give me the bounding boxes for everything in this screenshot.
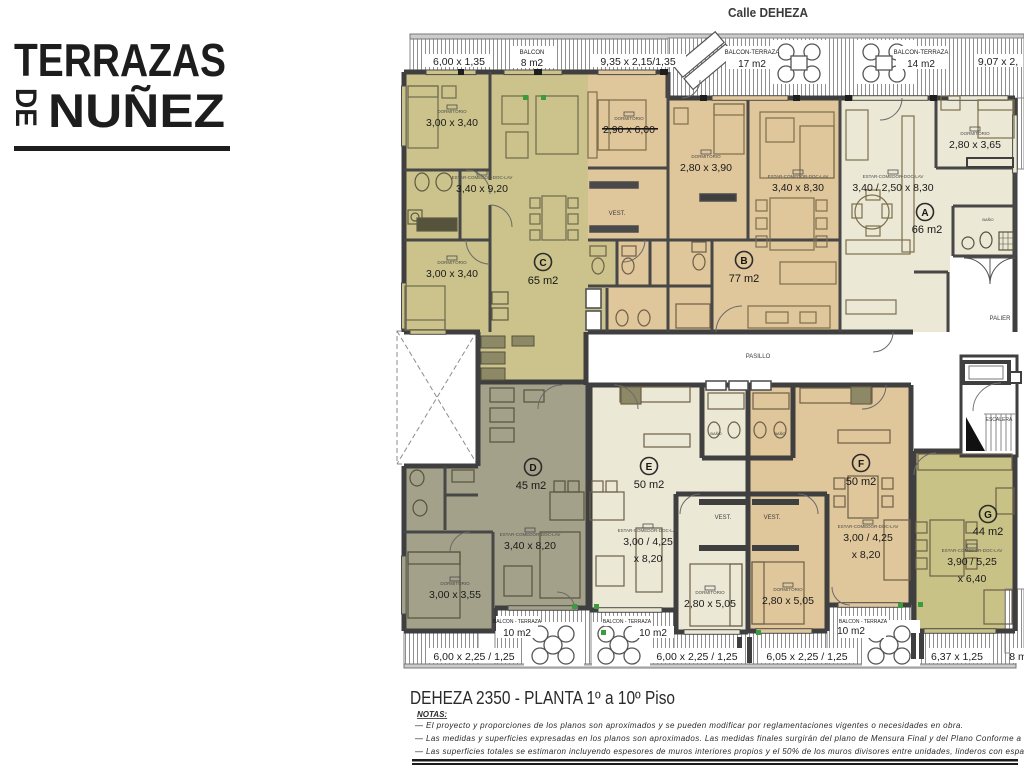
svg-text:66 m2: 66 m2: [912, 224, 943, 236]
svg-text:ESTAR-COMEDOR-DOC-LAV: ESTAR-COMEDOR-DOC-LAV: [838, 524, 899, 529]
svg-text:DORMITORIO: DORMITORIO: [691, 154, 721, 159]
svg-text:BALCON - TERRAZA: BALCON - TERRAZA: [839, 619, 888, 625]
svg-text:— Las superficies totales se: — Las superficies totales se estimaron i…: [414, 747, 1024, 756]
svg-text:2,80 x 5,05: 2,80 x 5,05: [684, 598, 736, 610]
svg-text:ESTAR-COMEDOR-DOC-LAV: ESTAR-COMEDOR-DOC-LAV: [452, 175, 513, 180]
svg-text:44 m2: 44 m2: [973, 526, 1004, 538]
svg-text:3,00 / 4,25: 3,00 / 4,25: [623, 536, 673, 548]
svg-text:DORMITORIO: DORMITORIO: [960, 131, 990, 136]
svg-text:NUÑEZ: NUÑEZ: [48, 84, 225, 137]
svg-text:x 8,20: x 8,20: [852, 549, 881, 561]
svg-text:3,40 / 2,50 x 8,30: 3,40 / 2,50 x 8,30: [852, 182, 933, 194]
svg-text:3,00 / 4,25: 3,00 / 4,25: [843, 532, 893, 544]
svg-text:3,40 x 8,20: 3,40 x 8,20: [504, 540, 556, 552]
svg-text:3,00 x 3,40: 3,00 x 3,40: [426, 268, 478, 280]
svg-text:6,05 x 2,25 / 1,25: 6,05 x 2,25 / 1,25: [766, 651, 847, 663]
svg-text:A: A: [921, 208, 928, 219]
svg-text:9,35 x 2,15/1,35: 9,35 x 2,15/1,35: [600, 56, 675, 68]
svg-text:DORMITORIO: DORMITORIO: [773, 587, 803, 592]
svg-text:x 6,40: x 6,40: [958, 573, 987, 585]
svg-text:8 m: 8 m: [1009, 651, 1024, 663]
svg-text:BAÑO: BAÑO: [982, 217, 993, 222]
svg-text:— El proyecto y proporciones: — El proyecto y proporciones de los plan…: [414, 721, 963, 730]
svg-text:BALCON: BALCON: [520, 50, 545, 56]
svg-text:DORMITORIO: DORMITORIO: [437, 109, 467, 114]
svg-text:6,00 x 2,25 / 1,25: 6,00 x 2,25 / 1,25: [433, 651, 514, 663]
svg-text:10 m2: 10 m2: [837, 626, 865, 637]
svg-text:DORMITORIO: DORMITORIO: [440, 581, 470, 586]
svg-text:2,90 x 6,00: 2,90 x 6,00: [603, 124, 655, 136]
svg-text:3,40 x 8,30: 3,40 x 8,30: [772, 182, 824, 194]
svg-text:DE: DE: [9, 88, 42, 127]
svg-text:BALCON - TERRAZA: BALCON - TERRAZA: [493, 619, 542, 625]
svg-text:Calle DEHEZA: Calle DEHEZA: [728, 6, 808, 20]
svg-text:G: G: [984, 510, 992, 521]
svg-text:VEST.: VEST.: [764, 515, 781, 521]
svg-text:B: B: [740, 256, 747, 267]
svg-text:50 m2: 50 m2: [846, 476, 877, 488]
svg-text:DEHEZA 2350 - PLANTA 1º a 10º: DEHEZA 2350 - PLANTA 1º a 10º Piso: [410, 688, 675, 708]
svg-text:VEST.: VEST.: [609, 211, 626, 217]
svg-text:50 m2: 50 m2: [634, 479, 665, 491]
svg-text:6,00 x 1,35: 6,00 x 1,35: [433, 56, 485, 68]
svg-text:2,80 x 5,05: 2,80 x 5,05: [762, 595, 814, 607]
svg-text:BALCON-TERRAZA: BALCON-TERRAZA: [894, 50, 949, 56]
svg-text:ESTAR-COMEDOR-DOC-LAV: ESTAR-COMEDOR-DOC-LAV: [942, 548, 1003, 553]
svg-text:BALCON - TERRAZA: BALCON - TERRAZA: [603, 619, 652, 625]
svg-text:2,80 x 3,90: 2,80 x 3,90: [680, 162, 732, 174]
svg-text:DORMITORIO: DORMITORIO: [437, 260, 467, 265]
svg-text:BAÑO: BAÑO: [710, 431, 721, 436]
svg-text:BAÑO: BAÑO: [774, 431, 785, 436]
svg-text:VEST.: VEST.: [715, 515, 732, 521]
svg-text:ESTAR-COMEDOR-DOC-LAV: ESTAR-COMEDOR-DOC-LAV: [768, 174, 829, 179]
svg-text:10 m2: 10 m2: [503, 628, 531, 639]
svg-text:DORMITORIO: DORMITORIO: [695, 590, 725, 595]
svg-text:3,00 x 3,55: 3,00 x 3,55: [429, 589, 481, 601]
svg-text:x 8,20: x 8,20: [634, 553, 663, 565]
svg-text:6,00 x 2,25 / 1,25: 6,00 x 2,25 / 1,25: [656, 651, 737, 663]
svg-text:3,90 / 5,25: 3,90 / 5,25: [947, 556, 997, 568]
svg-text:PALIER: PALIER: [990, 316, 1012, 322]
svg-text:8 m2: 8 m2: [521, 58, 544, 69]
svg-text:14 m2: 14 m2: [907, 59, 935, 70]
svg-text:3,40 x 9,20: 3,40 x 9,20: [456, 183, 508, 195]
svg-text:9,07 x 2,: 9,07 x 2,: [978, 56, 1018, 68]
svg-text:65 m2: 65 m2: [528, 275, 559, 287]
svg-text:E: E: [646, 462, 653, 473]
svg-text:77 m2: 77 m2: [729, 273, 760, 285]
svg-text:DORMITORIO: DORMITORIO: [614, 116, 644, 121]
svg-text:TERRAZAS: TERRAZAS: [14, 34, 226, 86]
svg-text:ESCALERA: ESCALERA: [986, 417, 1013, 423]
svg-text:D: D: [529, 463, 536, 474]
svg-text:17 m2: 17 m2: [738, 59, 766, 70]
svg-text:C: C: [539, 258, 546, 269]
svg-text:10 m2: 10 m2: [639, 628, 667, 639]
svg-text:PASILLO: PASILLO: [746, 354, 771, 360]
svg-text:ESTAR-COMEDOR-DOC-LAV: ESTAR-COMEDOR-DOC-LAV: [500, 532, 561, 537]
svg-text:3,00 x 3,40: 3,00 x 3,40: [426, 117, 478, 129]
svg-text:45 m2: 45 m2: [516, 480, 547, 492]
svg-text:6,37 x 1,25: 6,37 x 1,25: [931, 651, 983, 663]
svg-text:BALCON-TERRAZA: BALCON-TERRAZA: [725, 50, 780, 56]
svg-text:ESTAR-COMEDOR-DOC-LAV: ESTAR-COMEDOR-DOC-LAV: [618, 528, 679, 533]
svg-text:ESTAR-COMEDOR-DOC-LAV: ESTAR-COMEDOR-DOC-LAV: [863, 174, 924, 179]
svg-text:NOTAS:: NOTAS:: [417, 710, 447, 719]
svg-text:2,80 x 3,65: 2,80 x 3,65: [949, 139, 1001, 151]
svg-text:— Las medidas y superficies e: — Las medidas y superficies expresadas e…: [414, 734, 1022, 743]
svg-text:F: F: [858, 459, 864, 470]
